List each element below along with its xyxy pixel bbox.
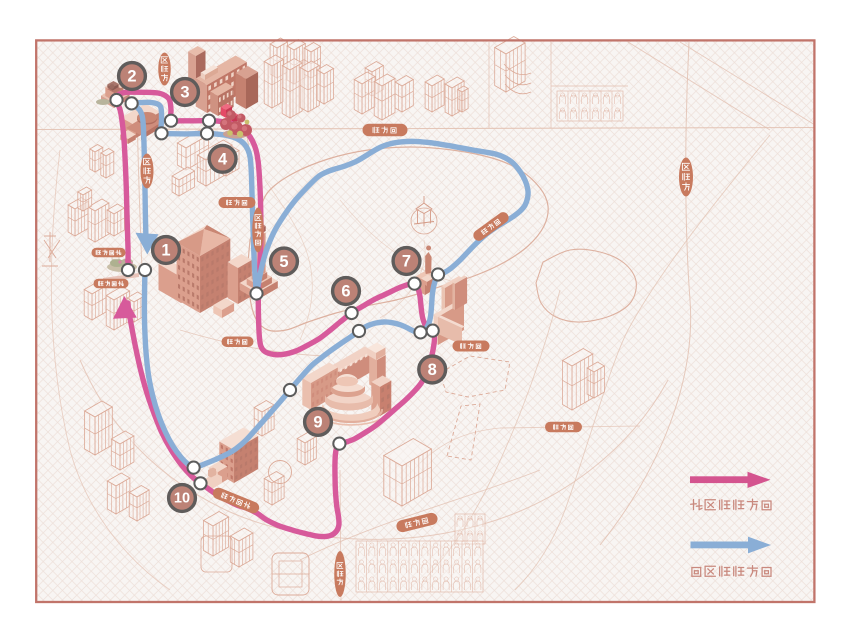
svg-text:1: 1: [161, 242, 170, 260]
svg-text:8: 8: [428, 361, 437, 379]
svg-text:3: 3: [180, 84, 189, 102]
svg-text:9: 9: [313, 413, 322, 431]
svg-text:10: 10: [174, 491, 190, 507]
svg-text:6: 6: [341, 283, 350, 301]
svg-text:7: 7: [402, 253, 411, 271]
svg-text:2: 2: [127, 68, 136, 86]
svg-text:5: 5: [279, 253, 288, 271]
svg-text:4: 4: [218, 150, 228, 168]
